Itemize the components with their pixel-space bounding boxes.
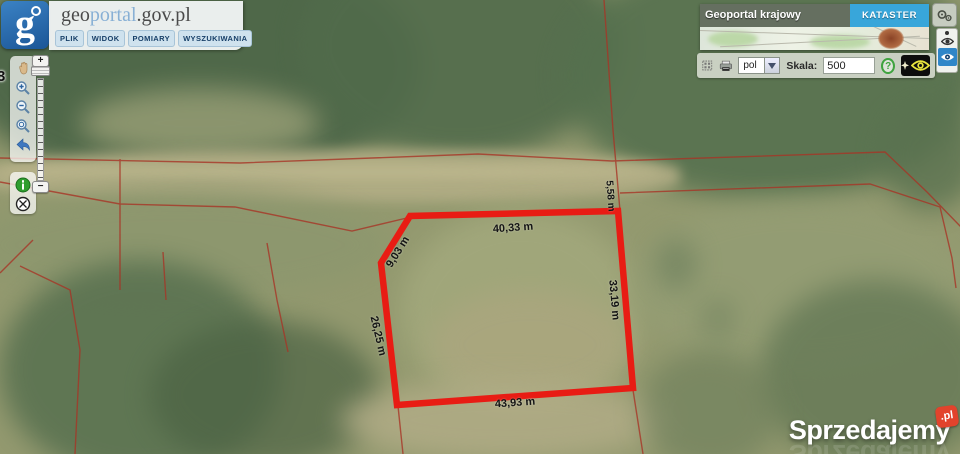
geoportal-logo[interactable]: g [1,1,49,49]
eye-icon [911,59,930,72]
layer-tabs: Geoportal krajowy KATASTER [700,4,929,27]
layer-visibility-strip [936,28,958,73]
info-icon[interactable] [13,175,33,194]
logo-letter: g [1,1,49,47]
info-tools-panel [10,172,36,214]
crosshair-icon [901,61,909,70]
gears-icon [936,9,953,22]
site-title: geoportal.gov.pl [49,1,243,27]
help-icon[interactable]: ? [881,58,895,74]
dropdown-arrow-icon[interactable] [765,57,780,74]
full-extent-icon[interactable] [13,116,33,135]
geoportal-app: 40,33 m 9,03 m 5,58 m 33,19 m 43,93 m 26… [0,0,960,454]
settings-button[interactable] [932,3,957,27]
dot-indicator[interactable] [945,31,949,35]
language-value: pol [738,57,765,74]
watermark-name: Sprzedajemy [789,415,950,445]
tab-kataster[interactable]: KATASTER [850,4,929,27]
overview-city-cluster [878,28,904,49]
header-panel: geoportal.gov.pl PLIK WIDOK POMIARY WYSZ… [49,1,243,50]
brand-suffix: .gov.pl [137,4,191,26]
layers-grid-icon[interactable] [702,59,713,72]
menu-wyszukiwania[interactable]: WYSZUKIWANIA [178,30,252,47]
parcel-number-label: 3 [0,68,5,85]
zoom-slider-handle[interactable] [31,66,50,76]
active-eye-icon [940,52,955,62]
visibility-toggle-button[interactable] [901,55,930,76]
language-select[interactable]: pol [738,57,780,74]
zoom-slider-track[interactable] [37,78,44,181]
logo-orbit-icon [31,6,41,16]
menu-pomiary[interactable]: POMIARY [128,30,176,47]
pan-icon[interactable] [13,59,33,78]
brand-geo: geo [61,4,90,26]
overview-panel: Geoportal krajowy KATASTER [700,4,929,50]
active-layer-eye-button[interactable] [938,48,957,66]
brand-portal: portal [90,4,137,26]
overview-map[interactable] [700,27,929,50]
map-toolbar: pol Skala: ? [697,53,935,78]
watermark-pl-badge: .pl [935,405,960,429]
tab-geoportal-krajowy[interactable]: Geoportal krajowy [700,4,850,27]
menu-widok[interactable]: WIDOK [87,30,125,47]
parcel-outline[interactable] [381,211,633,405]
scale-input[interactable] [823,57,875,74]
print-icon[interactable] [719,59,733,73]
watermark: Sprzedajemy .pl Sprzedajemy [789,415,950,446]
measurement-right-upper: 5,58 m [603,180,616,212]
menu-plik[interactable]: PLIK [55,30,84,47]
zoom-out-icon[interactable] [13,97,33,116]
scale-label: Skala: [786,60,817,72]
zoom-out-button[interactable]: − [32,181,49,193]
zoom-in-icon[interactable] [13,78,33,97]
main-menu: PLIK WIDOK POMIARY WYSZUKIWANIA [49,27,243,47]
previous-view-icon[interactable] [13,135,33,154]
clear-selection-icon[interactable] [13,194,33,213]
eye-indicator-icon[interactable] [941,37,954,46]
